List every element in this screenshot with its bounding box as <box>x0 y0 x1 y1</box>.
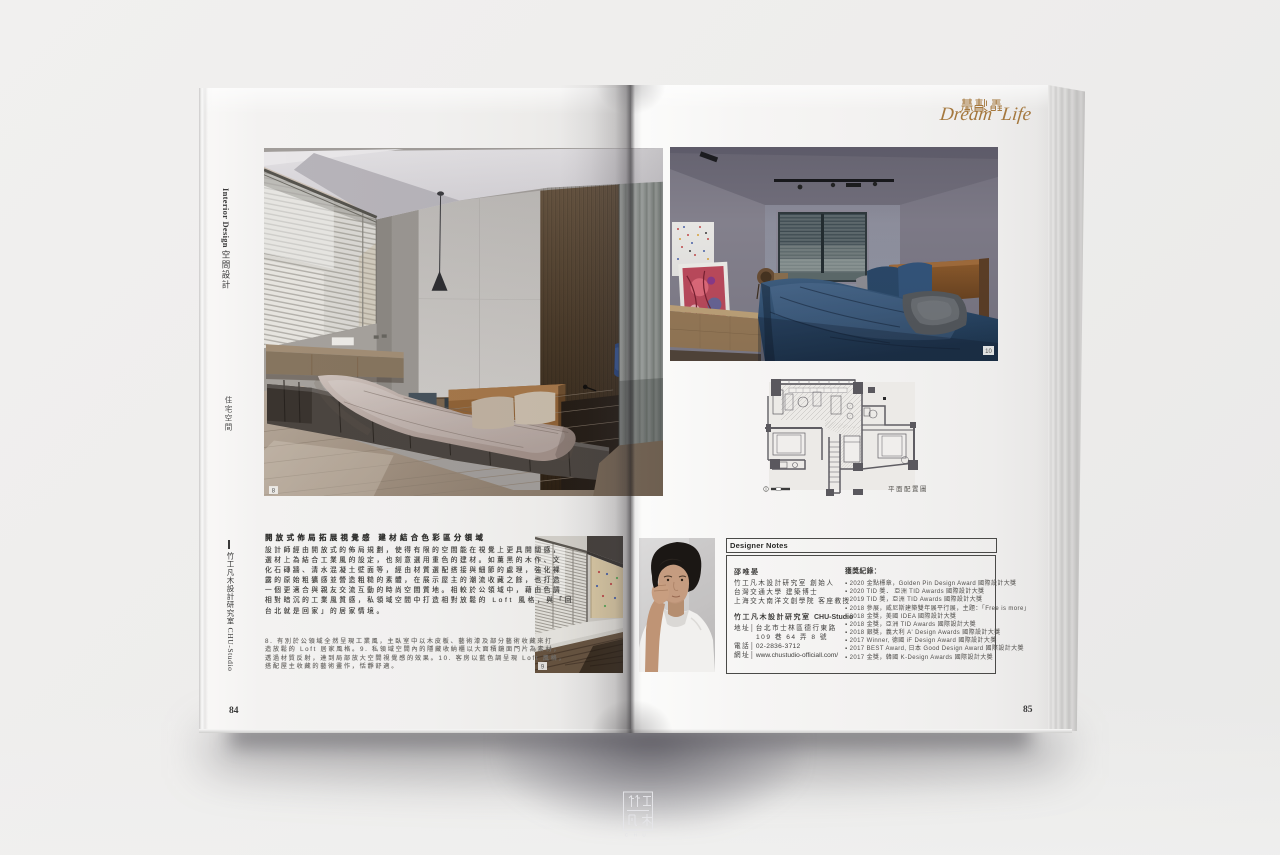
svg-text:10: 10 <box>985 349 992 355</box>
svg-text:CHU: CHU <box>625 833 651 838</box>
